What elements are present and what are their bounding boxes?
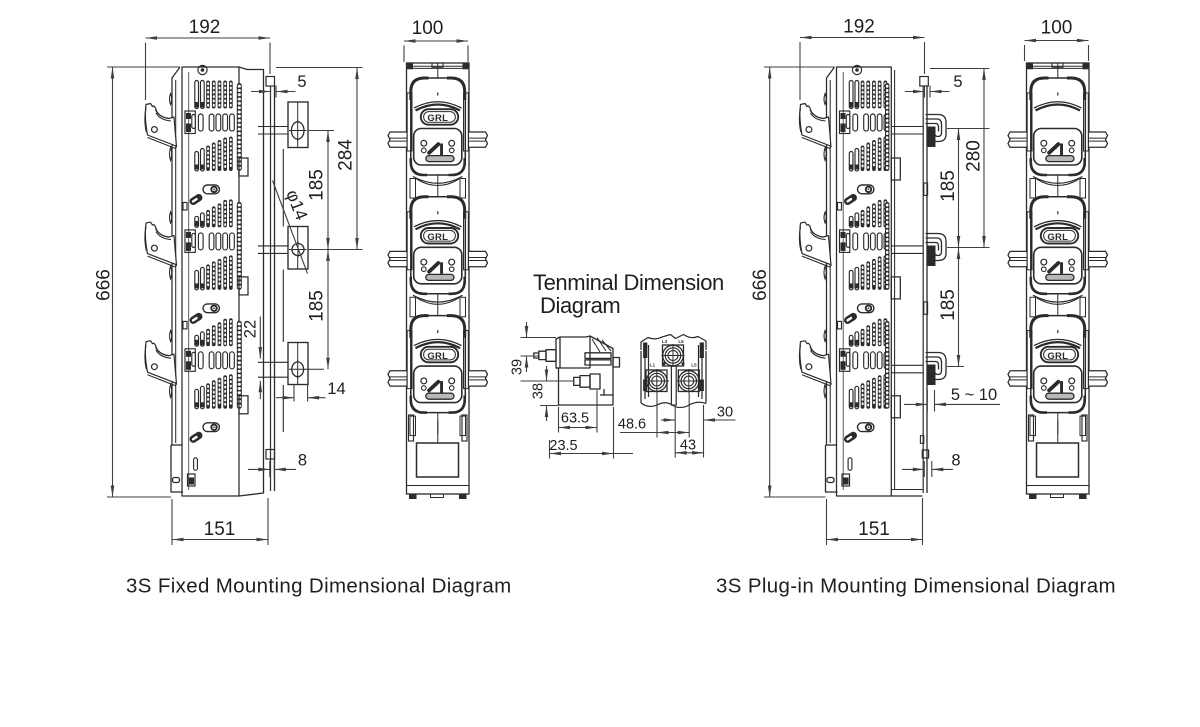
svg-text:192: 192 (189, 17, 221, 38)
svg-text:Diagram: Diagram (540, 293, 620, 318)
svg-text:284: 284 (336, 139, 357, 171)
svg-text:48.6: 48.6 (618, 417, 646, 433)
svg-text:43: 43 (680, 438, 696, 454)
svg-text:L3: L3 (662, 339, 668, 344)
svg-text:3S Fixed Mounting Dimensional: 3S Fixed Mounting Dimensional Diagram (126, 575, 512, 598)
svg-text:666: 666 (94, 269, 115, 301)
svg-text:151: 151 (858, 519, 890, 540)
svg-text:39: 39 (510, 359, 526, 375)
svg-text:38: 38 (531, 383, 547, 399)
svg-text:GRL: GRL (427, 113, 448, 124)
svg-text:GRL: GRL (1047, 232, 1068, 243)
svg-text:3S Plug-in Mounting Dimensiona: 3S Plug-in Mounting Dimensional Diagram (716, 575, 1116, 598)
svg-text:185: 185 (307, 290, 328, 322)
svg-text:14: 14 (327, 380, 345, 398)
svg-text:30: 30 (717, 405, 733, 421)
svg-text:8: 8 (951, 452, 960, 470)
svg-text:22: 22 (242, 320, 260, 338)
svg-text:5: 5 (297, 73, 306, 91)
svg-text:Tenminal Dimension: Tenminal Dimension (533, 270, 724, 295)
svg-text:L5: L5 (678, 339, 684, 344)
svg-text:5 ~ 10: 5 ~ 10 (951, 386, 997, 404)
svg-text:666: 666 (750, 269, 771, 301)
svg-text:23.5: 23.5 (549, 438, 577, 454)
svg-text:100: 100 (1041, 18, 1073, 39)
svg-text:100: 100 (412, 18, 444, 39)
svg-text:63.5: 63.5 (561, 411, 589, 427)
svg-text:185: 185 (938, 289, 959, 321)
svg-text:GRL: GRL (427, 232, 448, 243)
svg-text:L1: L1 (650, 363, 656, 368)
svg-text:GRL: GRL (427, 351, 448, 362)
svg-text:192: 192 (843, 17, 875, 38)
svg-text:GRL: GRL (1047, 351, 1068, 362)
svg-text:185: 185 (938, 170, 959, 202)
svg-text:185: 185 (307, 169, 328, 201)
svg-text:5: 5 (953, 73, 962, 91)
svg-text:8: 8 (298, 452, 307, 470)
svg-text:L5: L5 (691, 363, 697, 368)
svg-text:280: 280 (964, 140, 985, 172)
svg-text:151: 151 (204, 519, 236, 540)
